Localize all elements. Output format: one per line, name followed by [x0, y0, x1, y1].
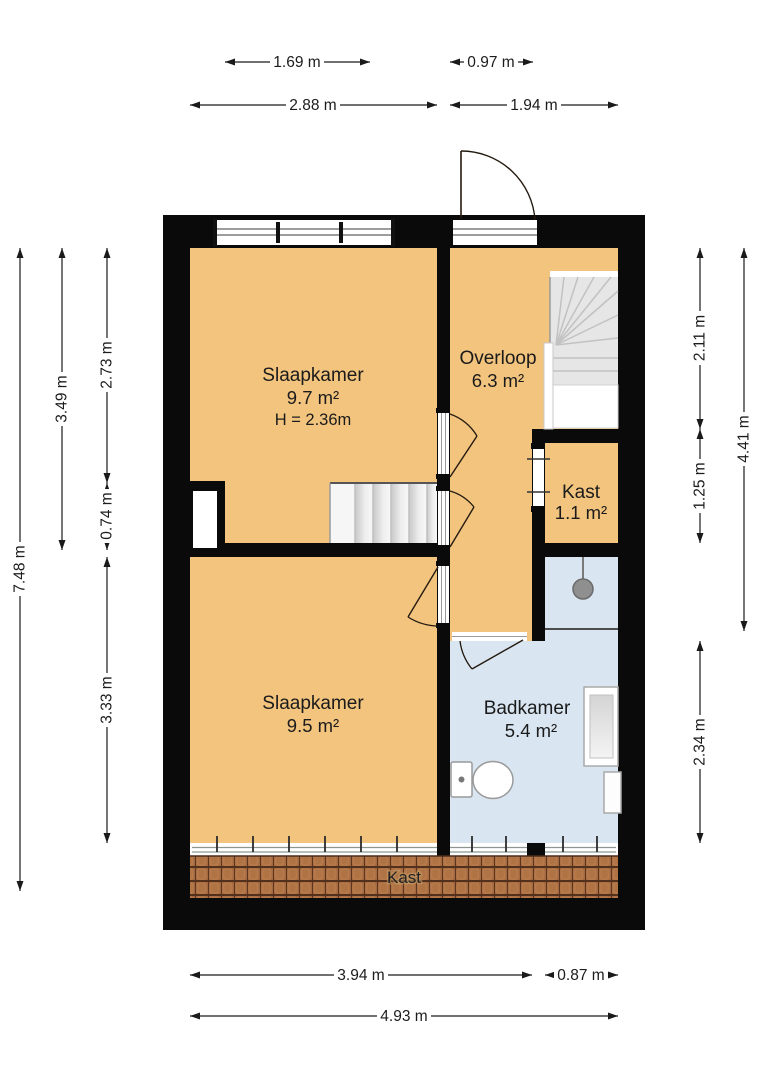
closet-area: 1.1 m² — [555, 502, 607, 523]
svg-text:3.33 m: 3.33 m — [99, 676, 116, 723]
dim-left-stair-zone-height: 0.74 m — [99, 483, 116, 550]
washbasin — [584, 687, 618, 766]
staircase-straight — [330, 483, 437, 543]
bedroom-bottom-area: 9.5 m² — [287, 715, 339, 736]
svg-text:1.94 m: 1.94 m — [510, 97, 557, 114]
dim-bottom-total-width: 4.93 m — [190, 1007, 618, 1025]
dim-right-bathroom-height: 2.34 m — [692, 641, 709, 843]
landing-area: 6.3 m² — [472, 370, 524, 391]
staircase-winder — [544, 271, 618, 429]
wall-under-stairs — [190, 543, 450, 557]
dim-left-bedroom-bottom-height: 3.33 m — [99, 557, 116, 843]
dim-bottom-left-width: 3.94 m — [190, 966, 532, 984]
dim-left-upper-height: 3.49 m — [54, 248, 71, 550]
wall-niche — [185, 481, 225, 553]
svg-text:4.41 m: 4.41 m — [736, 415, 753, 462]
dim-top-bedroom-width: 2.88 m — [190, 96, 437, 114]
floor-plan-page: Slaapkamer 9.7 m² H = 2.36m Overloop 6.3… — [0, 0, 764, 1080]
svg-text:2.34 m: 2.34 m — [692, 718, 709, 765]
dim-left-bedroom-top-height: 2.73 m — [99, 248, 116, 483]
bathroom-name: Badkamer — [484, 698, 571, 719]
toilet — [451, 762, 513, 799]
dim-right-closet-height: 1.25 m — [692, 429, 709, 543]
svg-text:0.97 m: 0.97 m — [467, 54, 514, 71]
closet-name: Kast — [562, 482, 601, 503]
bathroom-cabinet — [604, 772, 621, 813]
window-top — [213, 218, 395, 247]
svg-text:2.11 m: 2.11 m — [692, 315, 709, 361]
svg-text:2.88 m: 2.88 m — [289, 97, 336, 114]
dim-left-total-height: 7.48 m — [12, 248, 29, 891]
stair-balustrade — [544, 343, 553, 429]
dim-top-landing-width: 1.94 m — [450, 96, 618, 114]
svg-text:4.93 m: 4.93 m — [380, 1008, 427, 1025]
eaves-storage-name: Kast — [387, 868, 421, 887]
bathroom-area: 5.4 m² — [505, 720, 557, 741]
landing-name: Overloop — [459, 348, 536, 369]
svg-text:0.74 m: 0.74 m — [99, 492, 116, 539]
bedroom-bottom-name: Slaapkamer — [262, 693, 364, 714]
door-top-exterior — [453, 151, 537, 245]
svg-text:2.73 m: 2.73 m — [99, 341, 116, 388]
svg-text:1.69 m: 1.69 m — [273, 54, 320, 71]
bedroom-top-area: 9.7 m² — [287, 387, 339, 408]
svg-text:7.48 m: 7.48 m — [12, 545, 29, 592]
dim-bottom-shower-width: 0.87 m — [545, 966, 618, 984]
dim-top-door-width: 0.97 m — [450, 53, 533, 71]
stair-landing — [552, 385, 618, 428]
svg-text:3.49 m: 3.49 m — [54, 375, 71, 422]
wall-closet-bottom — [532, 543, 618, 557]
dim-top-window-width: 1.69 m — [225, 53, 370, 71]
svg-text:0.87 m: 0.87 m — [557, 967, 604, 984]
dim-right-landing-height: 2.11 m — [692, 248, 709, 429]
floor-plan-svg: Slaapkamer 9.7 m² H = 2.36m Overloop 6.3… — [0, 0, 764, 1080]
svg-text:3.94 m: 3.94 m — [337, 967, 384, 984]
bedroom-top-name: Slaapkamer — [262, 365, 364, 386]
svg-text:1.25 m: 1.25 m — [692, 462, 709, 509]
bedroom-top-ceiling: H = 2.36m — [275, 411, 352, 429]
dim-right-upper-total-height: 4.41 m — [736, 248, 753, 631]
